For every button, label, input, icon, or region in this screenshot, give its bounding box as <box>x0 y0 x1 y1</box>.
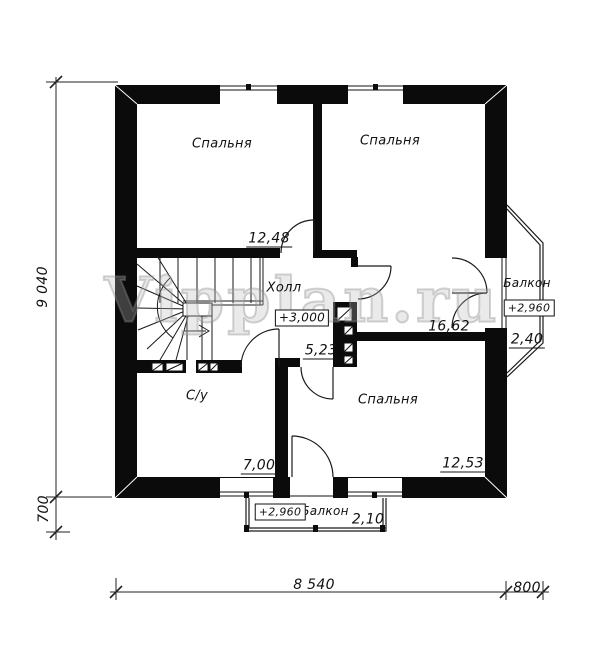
dimension-balcony-width: 800 <box>513 580 541 596</box>
balcony-right-outline <box>507 205 543 377</box>
room-label-hall: Холл <box>267 281 302 296</box>
window-bottom-right <box>348 478 402 498</box>
area-hall: 5,23 <box>303 343 339 360</box>
area-bedroom-top-left: 12,48 <box>246 231 292 248</box>
balcony-door-opening-bottom <box>290 477 333 498</box>
room-label-bathroom: С/у <box>186 389 208 404</box>
room-label-balcony-right: Балкон <box>503 276 551 290</box>
area-balcony-bottom: 2,10 <box>350 512 386 529</box>
dimension-balcony-depth: 700 <box>36 495 52 523</box>
window-top-left <box>220 83 277 104</box>
elevation-balcony-bottom: +2,960 <box>255 504 306 521</box>
window-top-right <box>348 83 403 104</box>
door-balcony-bottom <box>292 436 333 477</box>
elevation-balcony-right: +2,960 <box>504 300 555 317</box>
area-balcony-right: 2,40 <box>509 332 545 349</box>
room-label-bedroom-top-left: Спальня <box>192 137 252 152</box>
area-bathroom: 7,00 <box>241 458 277 475</box>
room-label-balcony-bottom: Балкон <box>301 504 349 518</box>
dimension-height-total: 9 040 <box>35 266 51 308</box>
door-bedroom-bottom <box>301 367 333 399</box>
dimension-width-main: 8 540 <box>293 577 335 593</box>
floor-plan-page: Vipplan.ru Спальня Спальня Спальня Холл … <box>0 0 600 666</box>
room-label-bedroom-bottom: Спальня <box>358 393 418 408</box>
window-bottom-left <box>220 478 273 498</box>
elevation-hall: +3,000 <box>275 310 329 327</box>
room-label-bedroom-top-right: Спальня <box>360 134 420 149</box>
area-bedroom-bottom: 12,53 <box>440 456 486 473</box>
area-bedroom-top-right: 16,62 <box>426 319 472 336</box>
